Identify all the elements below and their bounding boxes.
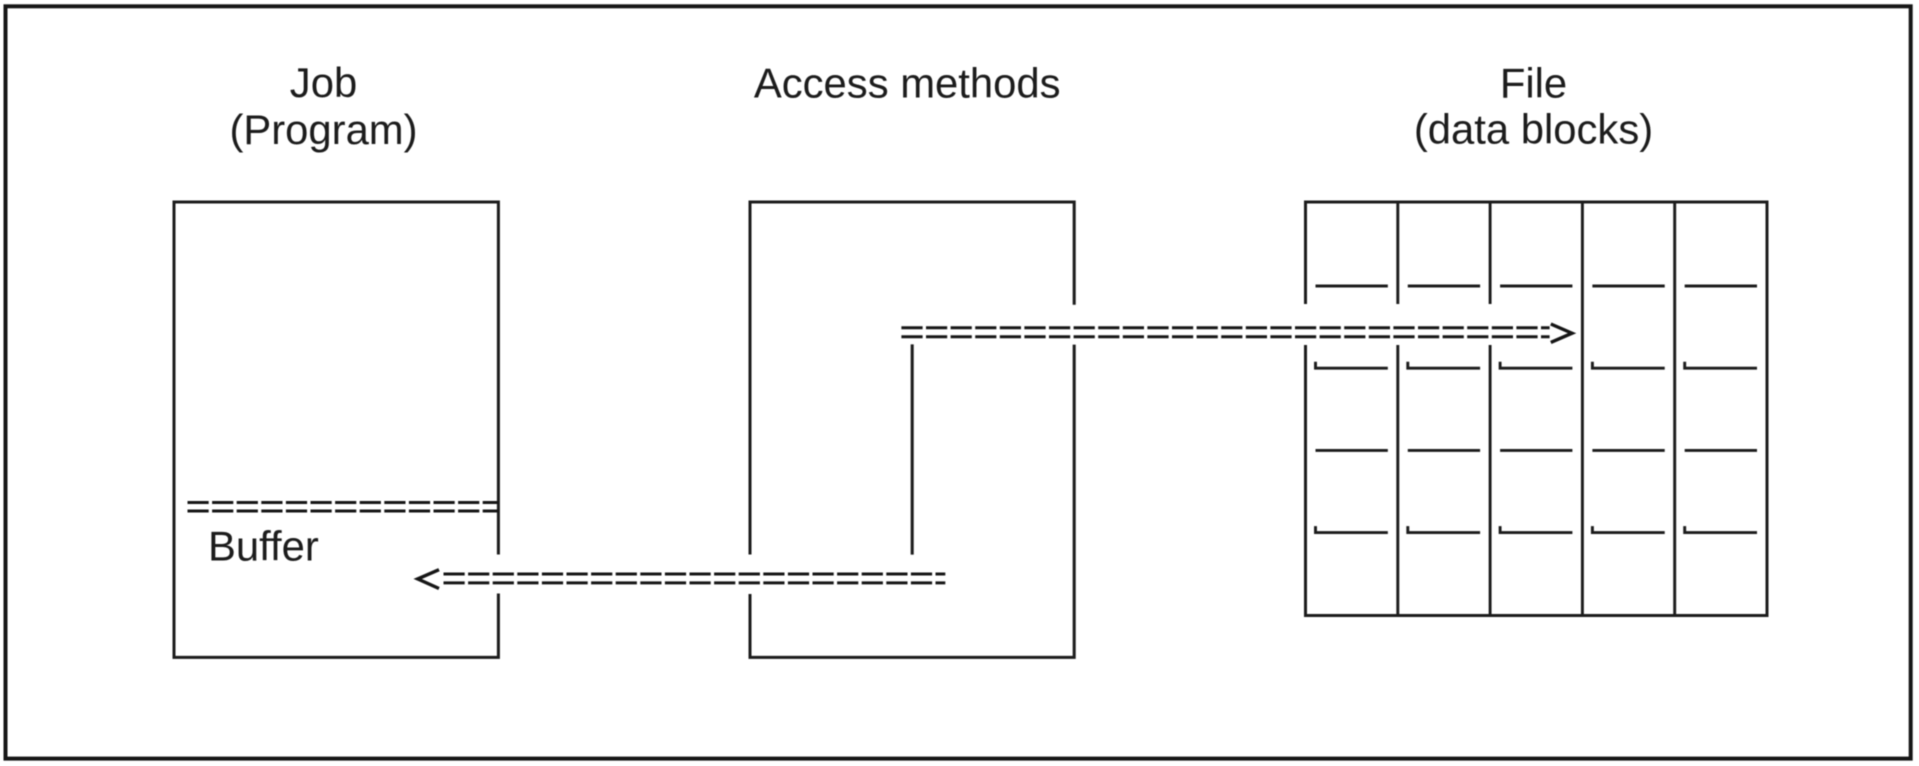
svg-text:Job: Job xyxy=(290,59,357,106)
svg-text:File: File xyxy=(1500,60,1567,107)
svg-text:Buffer: Buffer xyxy=(208,523,319,570)
svg-text:(Program): (Program) xyxy=(229,106,417,153)
svg-text:(data blocks): (data blocks) xyxy=(1414,106,1653,153)
svg-text:Access methods: Access methods xyxy=(754,60,1061,107)
